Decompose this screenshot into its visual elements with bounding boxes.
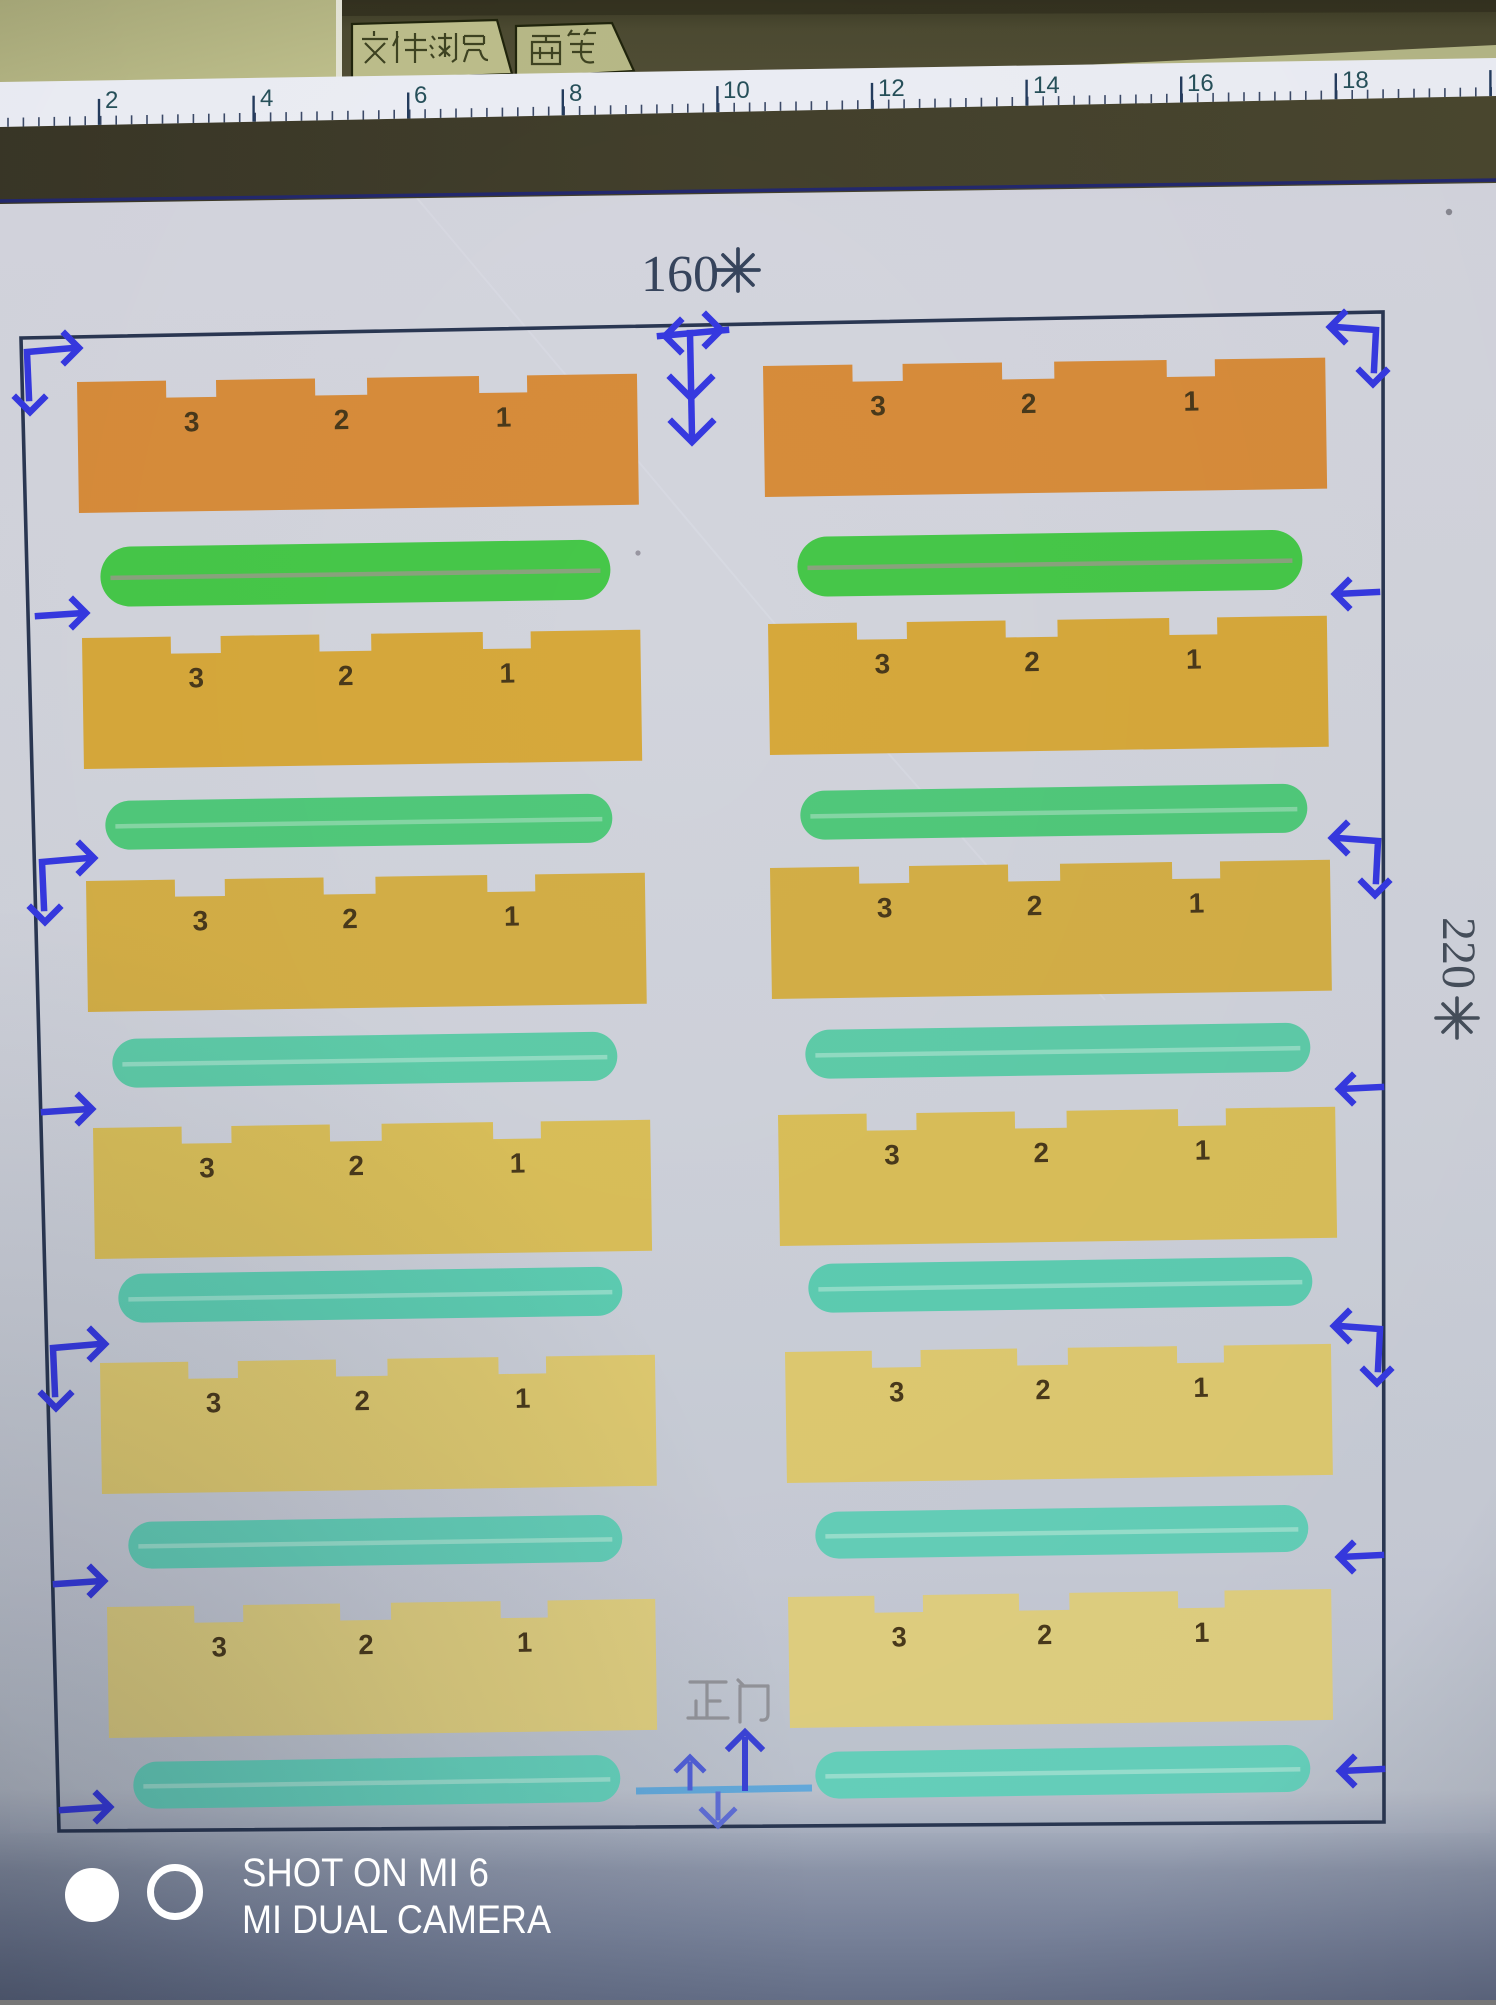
svg-text:SHOT ON MI 6: SHOT ON MI 6 — [242, 1851, 489, 1895]
svg-text:MI DUAL CAMERA: MI DUAL CAMERA — [242, 1898, 551, 1942]
